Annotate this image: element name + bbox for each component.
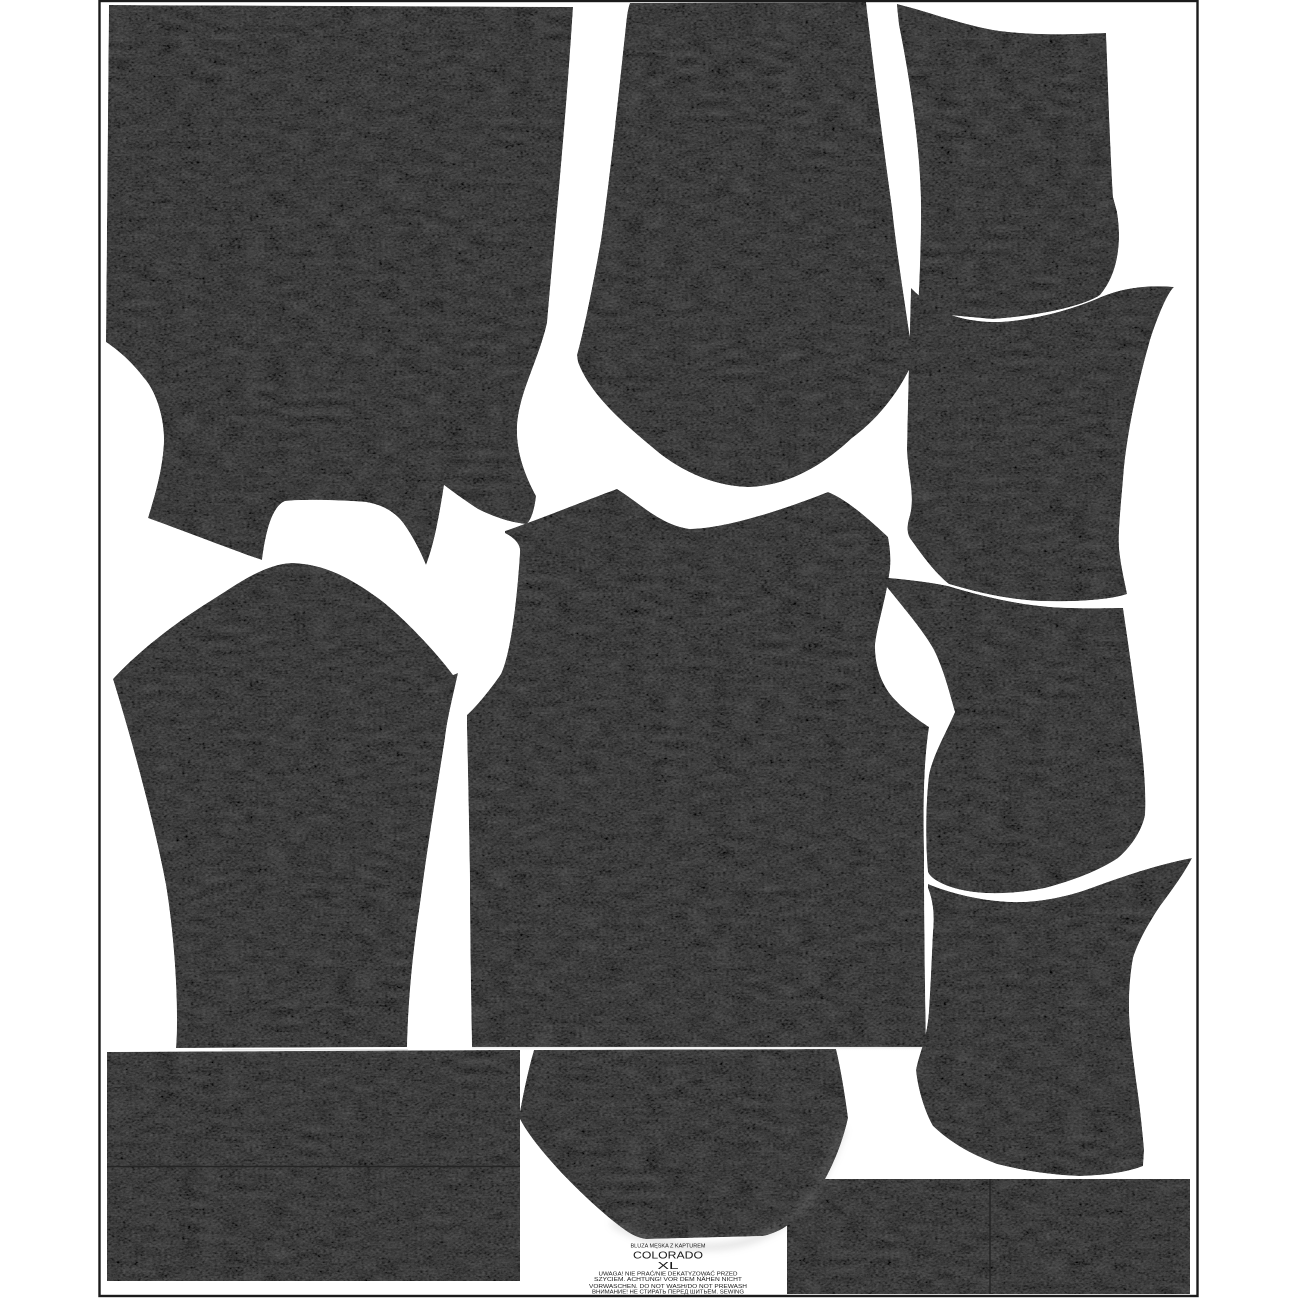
svg-text:ВНИМАНИЕ! НЕ СТИРАТЬ ПЕРЕД ШИТ: ВНИМАНИЕ! НЕ СТИРАТЬ ПЕРЕД ШИТЬЁМ. SEWIN… — [592, 1288, 744, 1295]
svg-text:XL: XL — [658, 1260, 679, 1272]
svg-text:BLUZA MĘSKA Z KAPTUREM: BLUZA MĘSKA Z KAPTUREM — [631, 1244, 706, 1250]
svg-text:SZYCIEM. ACHTUNG! VOR DEM NÄHE: SZYCIEM. ACHTUNG! VOR DEM NÄHEN NICHT — [594, 1276, 742, 1283]
